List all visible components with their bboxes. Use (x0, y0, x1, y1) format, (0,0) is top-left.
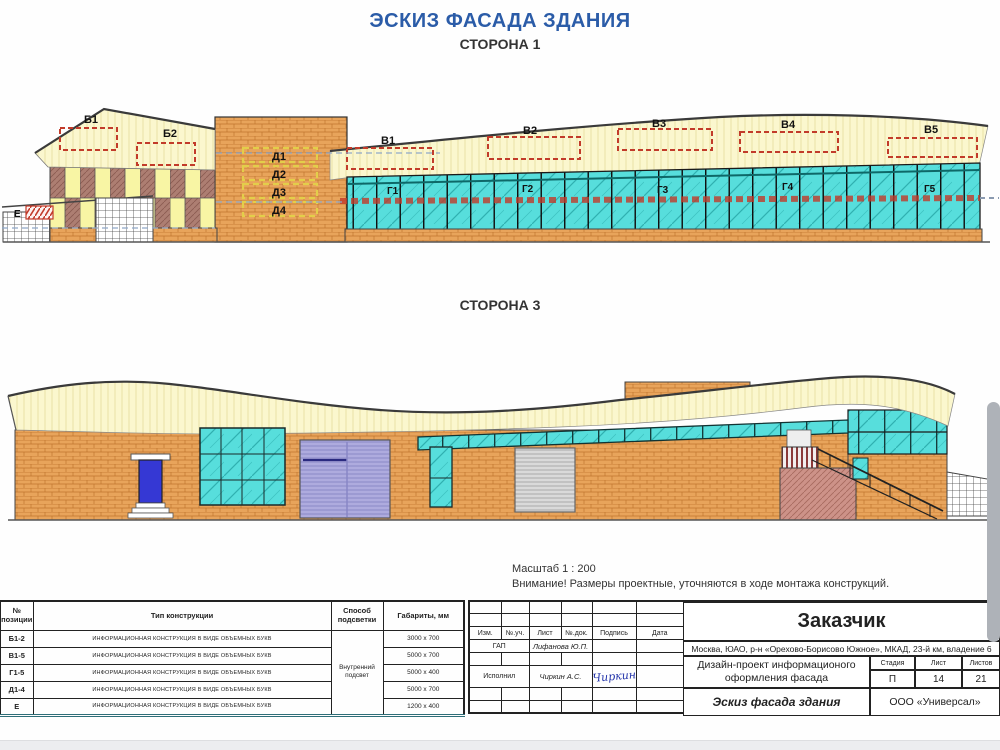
sign-label-g5: Г5 (924, 184, 936, 195)
spec-row-pos: Б1-2 (0, 630, 33, 647)
vertical-scrollbar-thumb[interactable] (987, 402, 1000, 642)
sign-label-g3: Г3 (657, 185, 669, 196)
spec-row-pos: Г1-5 (0, 664, 33, 681)
roller-gate-lavender (300, 440, 390, 518)
spec-row-pos: Е (0, 698, 33, 715)
handwritten-signature: Чиркин (591, 663, 637, 689)
spec-lighting-cell: Внутренний подсвет (331, 630, 383, 715)
notes-block: Масштаб 1 : 200 Внимание! Размеры проект… (512, 562, 889, 592)
spec-row-pos: В1-5 (0, 647, 33, 664)
stamp-col-izm: Изм. (469, 626, 501, 639)
project-name: Дизайн-проект информационого оформления … (683, 656, 870, 688)
spec-row-size: 1200 x 400 (383, 698, 464, 715)
spec-row-type: ИНФОРМАЦИОННАЯ КОНСТРУКЦИЯ В ВИДЕ ОБЪЕМН… (33, 698, 331, 715)
side3-elevation-drawing (0, 370, 1000, 540)
sheet-value: 14 (915, 670, 962, 688)
customer-label: Заказчик (683, 602, 1000, 641)
spec-header-light: Способ подсветки (331, 601, 383, 630)
stamp-col-dok: №.док. (561, 626, 592, 639)
spec-row-type: ИНФОРМАЦИОННАЯ КОНСТРУКЦИЯ В ВИДЕ ОБЪЕМН… (33, 664, 331, 681)
stage-label: Стадия (870, 656, 915, 670)
spec-header-size: Габариты, мм (383, 601, 464, 630)
sign-label-v2: В2 (523, 125, 537, 137)
roller-gate-gray (515, 448, 575, 512)
sign-label-b2: Б2 (163, 128, 177, 140)
stamp-col-sign: Подпись (592, 626, 636, 639)
small-window (430, 447, 452, 507)
stamp-role-ispolnil: Исполнил (469, 665, 529, 687)
side1-elevation-drawing: Б1 Б2 В1 В2 В3 В4 В5 Г1 Г2 Г3 Г4 Г5 Д1 Д… (0, 88, 1000, 248)
spec-row-pos: Д1-4 (0, 681, 33, 698)
spec-header-pos: № позиции (0, 601, 33, 630)
spec-row-type: ИНФОРМАЦИОННАЯ КОНСТРУКЦИЯ В ВИДЕ ОБЪЕМН… (33, 630, 331, 647)
signature-stamp-table: Изм. №.уч. Лист №.док. Подпись Дата ГАП … (468, 600, 685, 714)
large-window (200, 428, 285, 505)
construction-spec-table: № позиции Тип конструкции Способ подсвет… (0, 600, 465, 717)
spec-header-type: Тип конструкции (33, 601, 331, 630)
sign-label-v3: В3 (652, 118, 666, 130)
sign-label-d4: Д4 (272, 205, 287, 217)
sign-label-g1: Г1 (387, 186, 399, 197)
page-title: ЭСКИЗ ФАСАДА ЗДАНИЯ (0, 10, 1000, 33)
spec-row-size: 5000 x 700 (383, 647, 464, 664)
stamp-role-gap: ГАП (469, 640, 529, 653)
warning-note: Внимание! Размеры проектные, уточняются … (512, 577, 889, 592)
sheets-value: 21 (962, 670, 1000, 688)
sign-label-v4: В4 (781, 119, 796, 131)
stamp-name-chirkin: Чиркин А.С. (529, 665, 592, 687)
stamp-col-date: Дата (636, 626, 684, 639)
sign-label-d2: Д2 (272, 169, 286, 181)
spec-row-size: 5000 x 700 (383, 681, 464, 698)
sign-label-v5: В5 (924, 124, 938, 136)
glass-curtain-wall (340, 163, 999, 242)
sign-label-g4: Г4 (782, 182, 794, 193)
company-name: ООО «Универсал» (870, 688, 1000, 716)
title-block: Заказчик Москва, ЮАО, р-н «Орехово-Борис… (683, 600, 1000, 714)
site-address: Москва, ЮАО, р-н «Орехово-Борисово Южное… (683, 641, 1000, 656)
sign-label-v1: В1 (381, 135, 395, 147)
spec-row-type: ИНФОРМАЦИОННАЯ КОНСТРУКЦИЯ В ВИДЕ ОБЪЕМН… (33, 681, 331, 698)
document-name: Эскиз фасада здания (683, 688, 870, 716)
sheet-label: Лист (915, 656, 962, 670)
sheets-label: Листов (962, 656, 1000, 670)
scale-note: Масштаб 1 : 200 (512, 562, 889, 577)
spec-row-type: ИНФОРМАЦИОННАЯ КОНСТРУКЦИЯ В ВИДЕ ОБЪЕМН… (33, 647, 331, 664)
sign-label-e: Е (14, 209, 21, 220)
sign-label-d1: Д1 (272, 151, 286, 163)
sign-label-d3: Д3 (272, 187, 286, 199)
spec-row-size: 5000 x 400 (383, 664, 464, 681)
drawing-sheet: ЭСКИЗ ФАСАДА ЗДАНИЯ СТОРОНА 1 (0, 0, 1000, 750)
horizontal-scrollbar-track[interactable] (0, 740, 1000, 750)
stage-value: П (870, 670, 915, 688)
left-canopy (35, 109, 215, 170)
sign-e-box (26, 206, 53, 219)
stamp-col-list: Лист (529, 626, 561, 639)
spec-row-size: 3000 x 700 (383, 630, 464, 647)
stamp-name-lifanova: Лифанова Ю.П. (529, 640, 592, 653)
side3-heading: СТОРОНА 3 (0, 297, 1000, 313)
sign-label-g2: Г2 (522, 184, 534, 195)
stamp-col-uch: №.уч. (501, 626, 529, 639)
side1-heading: СТОРОНА 1 (0, 36, 1000, 52)
sign-label-b1: Б1 (84, 114, 98, 126)
